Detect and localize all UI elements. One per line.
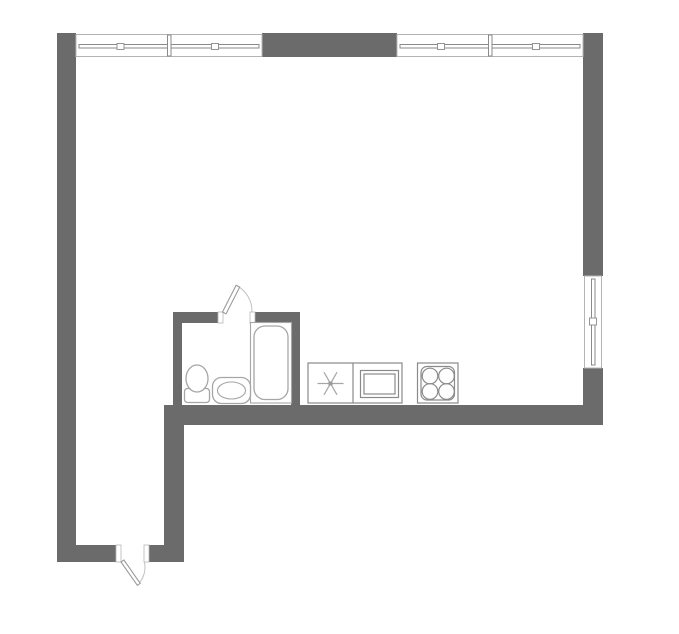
wall-top-segment [262,33,397,57]
right-window [585,276,602,368]
door-leaf [121,560,140,585]
window-handle-icon [438,44,445,50]
washbasin-bowl [218,382,246,399]
door-jamb [144,545,149,562]
wall-hall-bottom [57,545,116,562]
door-leaf [223,285,240,314]
wall-bottom-main [164,405,603,425]
bathroom-wall-left [173,313,182,405]
door-jamb [218,312,223,323]
bathroom-wall-top-left [173,312,218,323]
door-jamb [116,545,121,562]
wall-hall-right [164,405,184,562]
window-handle-icon [590,318,597,325]
top-window-right-mullion [489,35,493,56]
wall-hall-corner [149,545,184,562]
toilet-icon [186,365,208,392]
bathroom-door [218,285,255,323]
exterior-walls [57,33,603,562]
door-jamb [250,312,255,323]
wall-right-upper [583,33,603,276]
top-window-left-mullion [168,35,172,56]
window-handle-icon [533,44,540,50]
window-handle-icon [212,44,219,50]
window-handle-icon [117,44,124,50]
floor-plan-canvas [0,0,679,634]
bathtub-icon [254,326,288,400]
bathroom-wall-right [291,312,300,405]
entrance-door [116,545,149,585]
bathroom-fixtures [185,323,292,404]
kitchen-counter [308,363,458,403]
wall-left [57,33,76,562]
floor-plan [0,0,679,634]
